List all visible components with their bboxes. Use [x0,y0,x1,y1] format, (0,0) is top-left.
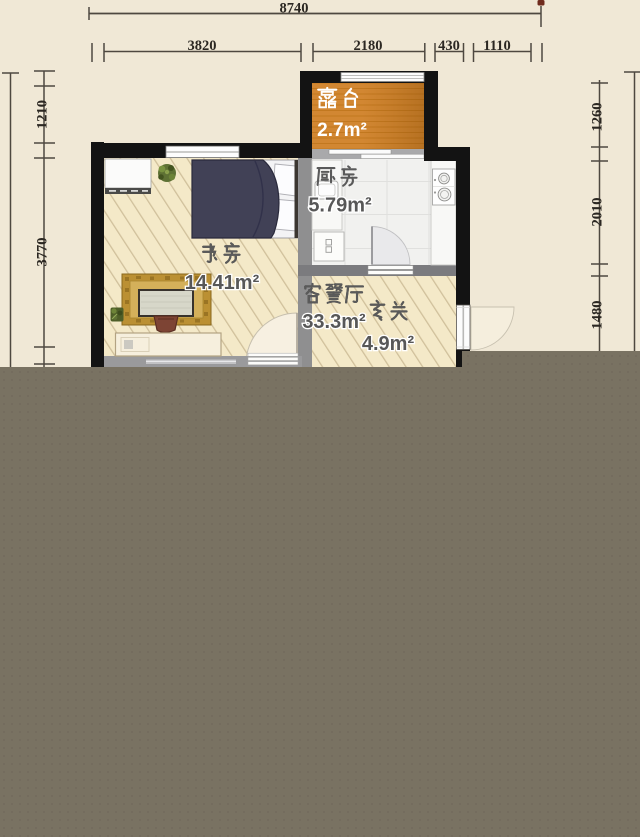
svg-text:2180: 2180 [354,38,383,54]
svg-text:1210: 1210 [35,100,51,129]
svg-text:430: 430 [438,38,460,54]
svg-text:1480: 1480 [590,301,606,330]
svg-text:8740: 8740 [280,1,309,17]
svg-text:1260: 1260 [590,103,606,132]
svg-text:33.3m²: 33.3m² [302,311,366,333]
svg-text:5.79m²: 5.79m² [308,195,372,217]
svg-text:1110: 1110 [483,38,510,54]
svg-text:4.9m²: 4.9m² [362,333,415,355]
svg-text:2.7m²: 2.7m² [317,120,367,141]
svg-text:3820: 3820 [188,38,217,54]
svg-text:14.41m²: 14.41m² [185,272,260,294]
svg-text:3770: 3770 [35,238,51,267]
svg-text:2010: 2010 [590,198,606,227]
